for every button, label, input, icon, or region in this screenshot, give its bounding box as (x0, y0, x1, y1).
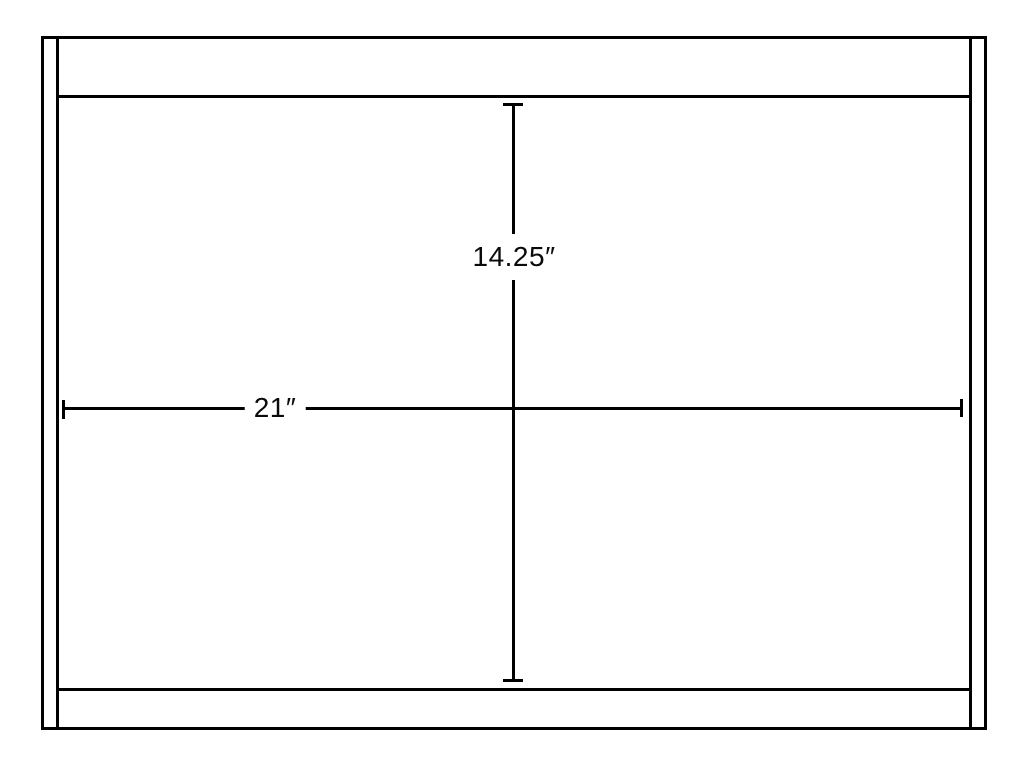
dimension-drawing-canvas: 14.25″ 21″ (0, 0, 1024, 769)
cabinet-top-edge-line (41, 36, 987, 39)
width-dimension-right-tick (960, 399, 963, 417)
height-dimension-line (512, 104, 515, 682)
right-panel-inner-line (969, 36, 972, 730)
right-panel-outer-line (984, 36, 987, 730)
width-dimension-line (62, 407, 963, 410)
top-rail-line (58, 95, 970, 98)
height-dimension-label: 14.25″ (467, 234, 562, 280)
width-dimension-left-tick (62, 400, 65, 419)
left-panel-inner-line (56, 36, 59, 730)
bottom-rail-line (58, 688, 970, 691)
height-dimension-top-tick (503, 103, 523, 106)
left-panel-outer-line (41, 36, 44, 730)
width-dimension-label: 21″ (245, 391, 306, 425)
cabinet-bottom-edge-line (41, 727, 987, 730)
height-dimension-bottom-tick (503, 679, 523, 682)
